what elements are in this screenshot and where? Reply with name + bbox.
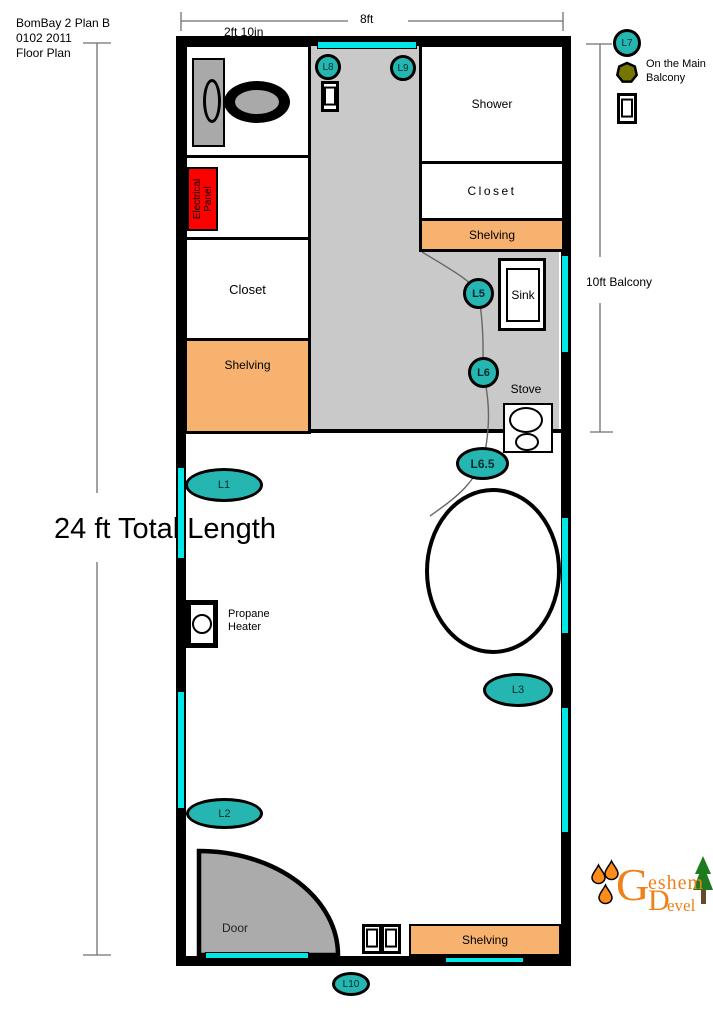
raindrops-icon [592,861,618,904]
logo-initial-top: G [616,858,649,911]
sink-basin: Sink [506,268,540,322]
propane-heater-burner [192,614,212,634]
window-bottom-left [205,952,309,959]
dim-length-total: 24 ft Total Length [54,513,276,546]
window-top [317,41,417,49]
title-line2: 0102 2011 [16,31,146,46]
switch-rocker [366,929,378,948]
light-l3: L3 [483,673,553,707]
sink: Sink [498,258,546,331]
sink-label: Sink [511,288,534,302]
stove-burner-small [515,433,539,451]
light-l10: L10 [332,972,370,996]
electrical-panel-label: Electrical Panel [192,168,214,230]
window-right-lower [561,707,569,833]
closet-right-label: Closet [467,184,516,198]
room-shower: Shower [419,44,565,164]
logo-text-bottom: evel [667,896,695,916]
window-left-lower [177,691,185,809]
room-closet-left: Closet [184,237,311,341]
dim-balcony: 10ft Balcony [586,276,652,290]
title-line1: BomBay 2 Plan B [16,16,146,31]
shelving-right: Shelving [419,218,565,252]
light-l5: L5 [463,278,494,309]
electrical-panel: Electrical Panel [187,167,218,231]
dim-width-section: 2ft 10in [224,26,263,40]
title-block: BomBay 2 Plan B 0102 2011 Floor Plan [16,16,146,61]
switch-rocker [324,86,336,105]
light-l1: L1 [185,468,263,502]
light-l6-5: L6.5 [456,447,509,480]
shelving-bottom: Shelving [409,924,561,956]
window-right-upper [561,255,569,353]
light-switch-double-left [362,924,382,954]
light-switch-balcony [617,93,637,124]
stove-label: Stove [498,383,554,397]
stove-burner-large [509,407,543,433]
closet-left-label: Closet [229,282,266,297]
window-bottom-right [445,957,524,963]
light-l8: L8 [315,54,341,80]
toilet-tank-oval [203,79,221,123]
dim-width-total: 8ft [360,13,373,27]
light-l9: L9 [390,55,416,81]
shelving-bottom-label: Shelving [462,933,508,947]
propane-heater-label: Propane Heater [228,608,294,633]
light-switch-double-right [381,924,401,954]
room-bathroom [184,44,311,158]
light-l7: L7 [613,29,641,57]
toilet-bowl [224,81,290,123]
floor-plan-page: Electrical Panel Closet Shelving Shower … [0,0,713,1013]
shelving-left: Shelving [184,338,311,434]
switch-rocker [385,929,397,948]
light-l6: L6 [468,357,499,388]
title-line3: Floor Plan [16,46,146,61]
light-l2: L2 [186,798,263,829]
balcony-light-note: On the Main Balcony [646,57,713,85]
door-label: Door [222,922,282,936]
toilet-tank [192,58,225,147]
propane-heater [186,600,218,648]
balcony-light-fixture-icon [617,63,636,82]
window-right-middle [561,517,569,634]
stove [503,403,553,453]
toilet-bowl-inner [235,90,279,114]
shelving-left-label: Shelving [224,358,270,372]
shelving-right-label: Shelving [469,228,515,242]
company-logo: G eshem D evel [586,854,713,969]
shower-label: Shower [472,97,513,111]
light-switch-corridor [321,81,339,112]
switch-rocker [621,98,633,117]
room-closet-right: Closet [419,161,565,221]
